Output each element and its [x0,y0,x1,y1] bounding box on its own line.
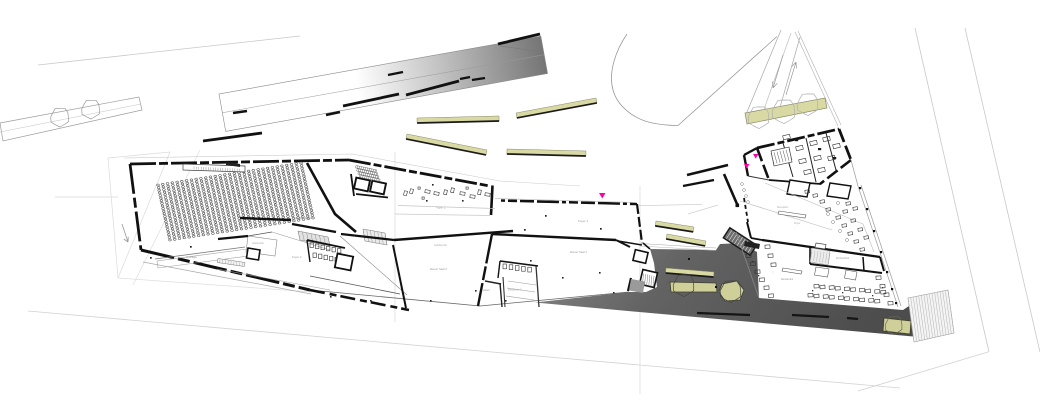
svg-text:Garderobe: Garderobe [252,242,265,245]
svg-text:Foyer 2: Foyer 2 [436,206,446,210]
svg-text:Küchenblock: Küchenblock [836,258,850,260]
svg-text:kleiner Saal 2: kleiner Saal 2 [430,267,447,271]
svg-text:Abluft: Abluft [483,288,490,292]
svg-text:Foyer 3: Foyer 3 [292,255,302,259]
svg-text:großer Saal: großer Saal [295,216,311,220]
svg-text:Foyer 1: Foyer 1 [578,219,589,223]
svg-text:Garderobe 2: Garderobe 2 [508,289,522,292]
svg-text:Garderobe: Garderobe [434,243,447,247]
svg-text:Restaurant: Restaurant [781,278,794,281]
svg-text:Foyer: Foyer [794,222,801,225]
svg-text:Reception: Reception [777,206,789,209]
svg-text:Hofflager: Hofflager [186,255,197,259]
svg-text:kleiner Saal 1: kleiner Saal 1 [570,250,587,254]
